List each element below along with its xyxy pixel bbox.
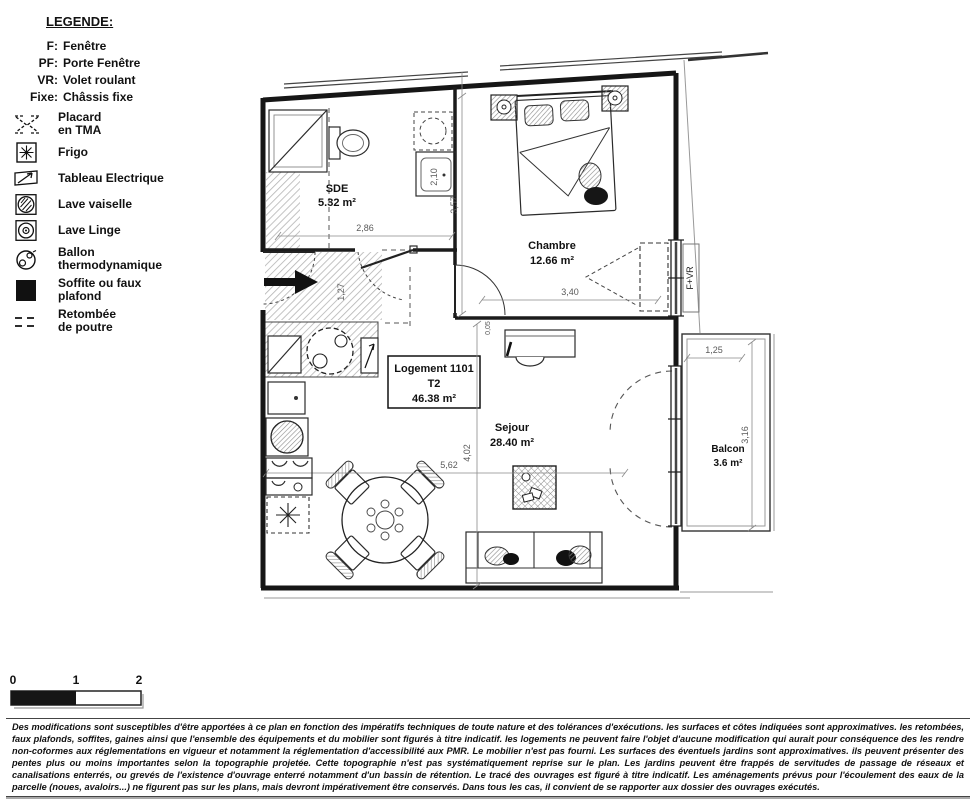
dim-left-height: 3,57	[449, 196, 459, 214]
dim-sejour-width: 5,62	[440, 460, 458, 470]
chambre-area: 12.66 m²	[530, 255, 574, 267]
disclaimer-text: Des modifications sont susceptibles d'êt…	[6, 718, 970, 797]
nightstand-right	[602, 86, 628, 111]
placard-tma	[586, 243, 668, 311]
dining-table	[324, 459, 445, 580]
dim-sde-height: 2,10	[429, 168, 439, 186]
chambre-label: Chambre	[528, 240, 576, 252]
floor-plan-page: LEGENDE: F: Fenêtre PF: Porte Fenêtre VR…	[0, 0, 976, 800]
washing-machine-tma	[414, 112, 452, 150]
dining-chair	[397, 532, 445, 580]
dim-balcon-height: 3,16	[740, 426, 750, 444]
sejour-area: 28.40 m²	[490, 437, 534, 449]
coffee-table	[513, 466, 556, 509]
sejour-label: Sejour	[495, 422, 530, 434]
kitchen-cabinet	[268, 336, 301, 373]
chambre-window-label: F+VR	[685, 266, 695, 290]
sde-area: 5.32 m²	[318, 197, 356, 209]
unit-area: 46.38 m²	[412, 393, 456, 405]
bottom-rule	[6, 797, 970, 799]
scale-1: 1	[73, 673, 80, 687]
scale-bar: 0 1 2	[10, 673, 143, 708]
double-sink	[266, 458, 312, 495]
sde-label: SDE	[326, 183, 349, 195]
dining-chair	[324, 459, 372, 507]
nightstand-left	[491, 95, 517, 120]
unit-type: T2	[428, 378, 441, 390]
floor-plan-svg: F+VR PF+Fixe+VR Balcon 3.6 m² 1,25 3,16	[0, 0, 976, 716]
dining-chair	[324, 532, 372, 580]
oven	[268, 382, 305, 414]
balcon-label: Balcon	[711, 444, 744, 455]
chambre-door	[455, 265, 505, 315]
frigo-tma	[267, 497, 309, 533]
unit-label-box: Logement 1101 T2 46.38 m²	[388, 356, 480, 408]
lave-vaisselle	[266, 418, 308, 456]
shower	[269, 110, 327, 172]
bedside-bag	[579, 163, 601, 189]
chambre-room: Chambre 12.66 m² 3,40 0,05	[479, 86, 668, 335]
dim-hall-height: 1,27	[336, 283, 346, 301]
dim-sejour-height: 4,02	[462, 444, 472, 462]
kitchen	[266, 328, 378, 533]
balcon-area: 3.6 m²	[714, 458, 744, 469]
window-door-swing-dashed	[610, 371, 672, 527]
dim-balcon-width: 1,25	[705, 345, 723, 355]
bedside-bag-dark	[584, 187, 608, 205]
dim-sde-width: 2,86	[356, 223, 374, 233]
dim-offset: 0,05	[485, 321, 492, 335]
scale-2: 2	[136, 673, 143, 687]
toilet	[329, 127, 369, 159]
ballon-thermodynamique	[307, 328, 353, 374]
dining-chair	[397, 459, 445, 507]
dim-chambre-width: 3,40	[561, 287, 579, 297]
scale-0: 0	[10, 673, 17, 687]
balcony: Balcon 3.6 m² 1,25 3,16	[682, 334, 774, 531]
unit-name: Logement 1101	[394, 363, 473, 375]
desk	[505, 330, 575, 366]
chambre-window: F+VR	[668, 240, 699, 316]
sofa	[466, 532, 602, 583]
tableau-electrique	[361, 338, 378, 373]
